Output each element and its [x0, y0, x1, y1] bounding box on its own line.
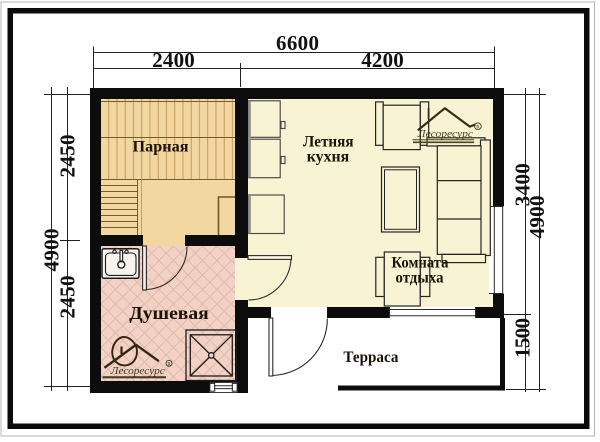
- svg-text:4900: 4900: [40, 229, 64, 272]
- svg-text:1500: 1500: [511, 318, 535, 358]
- svg-text:2400: 2400: [152, 48, 195, 72]
- svg-text:4200: 4200: [361, 48, 404, 72]
- svg-text:кухня: кухня: [307, 149, 350, 166]
- svg-text:R: R: [476, 125, 480, 131]
- svg-text:2450: 2450: [56, 276, 80, 319]
- svg-text:6600: 6600: [276, 31, 319, 55]
- svg-text:отдыха: отдыха: [396, 270, 444, 287]
- svg-text:Терраса: Терраса: [343, 349, 398, 366]
- svg-text:2450: 2450: [56, 135, 80, 178]
- svg-text:Душевая: Душевая: [129, 303, 209, 323]
- svg-text:Парная: Парная: [133, 138, 189, 155]
- svg-text:Лесоресурс: Лесоресурс: [417, 128, 473, 140]
- svg-text:4900: 4900: [525, 196, 549, 239]
- svg-text:Лесоресурс: Лесоресурс: [110, 366, 165, 377]
